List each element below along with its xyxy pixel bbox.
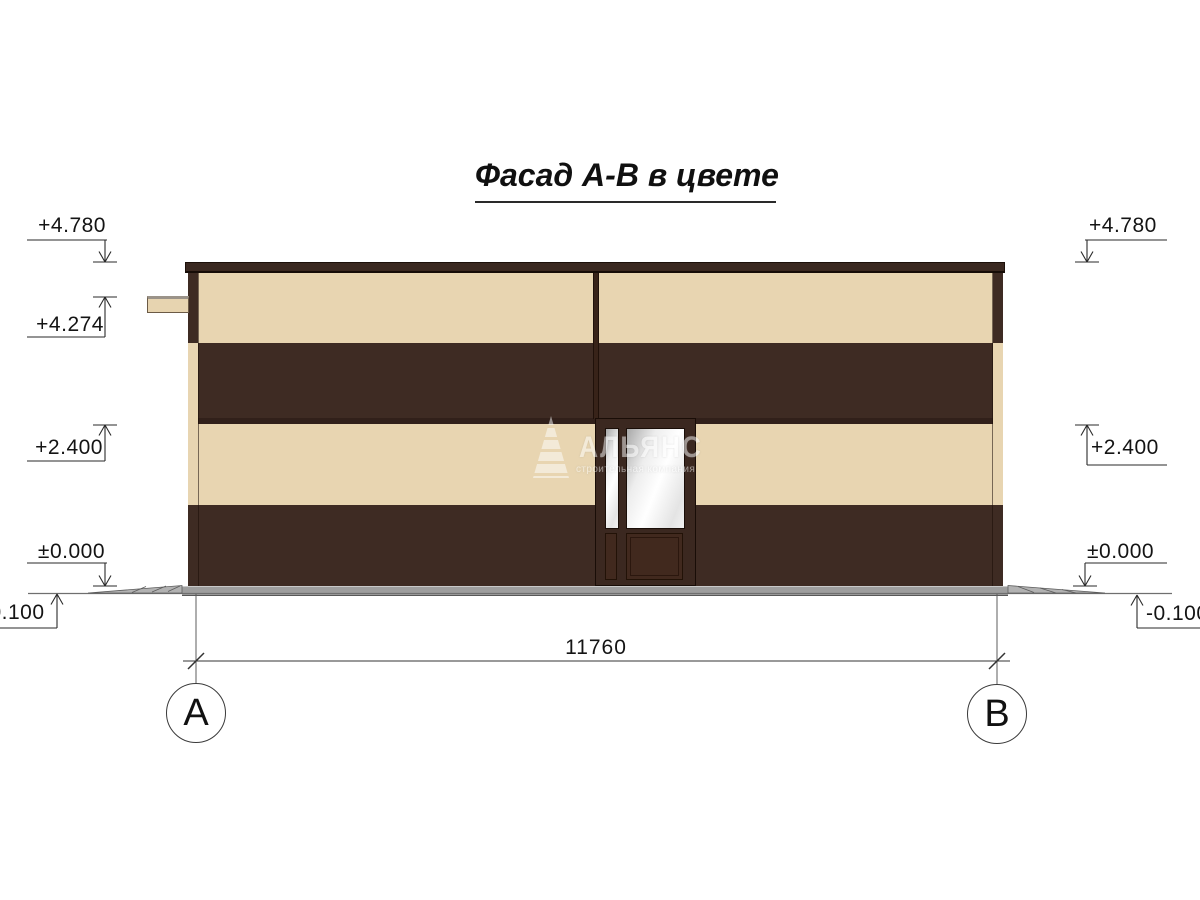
mark-right-parapet <box>1075 240 1167 262</box>
mark-left-parapet <box>27 240 117 262</box>
watermark-tagline: строительная компания <box>576 464 695 475</box>
watermark-brand: АЛЬЯНС <box>579 431 703 465</box>
axis-bubble-b: В <box>967 684 1027 744</box>
facade-drawing: АЛЬЯНС строительная компания <box>0 0 1200 900</box>
level-label-right-ground: -0.100 <box>1146 603 1200 624</box>
axis-letter-b: В <box>984 693 1009 736</box>
level-label-left-zero: ±0.000 <box>21 541 105 562</box>
corner-right-cream-seg <box>993 343 1003 505</box>
ground-verge-left <box>88 586 182 594</box>
level-label-left-ground: -0.100 <box>0 602 58 623</box>
mark-right-zero <box>1073 563 1167 586</box>
canopy-beam <box>147 296 189 313</box>
panel-joint <box>593 273 599 419</box>
door-leaf-panel <box>626 533 683 580</box>
level-label-right-parapet: +4.780 <box>1089 215 1173 236</box>
corner-right-dark-seg <box>993 273 1003 343</box>
axis-bubble-a: А <box>166 683 226 743</box>
level-label-left-storey: +2.400 <box>19 437 103 458</box>
door-panel-inset <box>630 537 679 576</box>
corner-strip-right <box>992 273 1003 586</box>
corner-right-dark-seg2 <box>993 505 1003 586</box>
axis-letter-a: А <box>183 692 208 735</box>
watermark-pyramid-logo <box>533 416 569 478</box>
corner-left-cream-seg <box>188 343 198 505</box>
plinth-base <box>182 586 1008 596</box>
corner-left-dark-seg <box>188 273 198 343</box>
corner-strip-left <box>188 273 199 586</box>
level-label-right-zero: ±0.000 <box>1087 541 1171 562</box>
mark-left-zero <box>27 563 117 586</box>
parapet-cap <box>185 262 1005 273</box>
drawing-title: Фасад А-В в цвете <box>475 157 776 203</box>
corner-left-dark-seg2 <box>188 505 198 586</box>
level-label-right-storey: +2.400 <box>1091 437 1175 458</box>
overall-dimension-label: 11760 <box>521 636 671 660</box>
door-sidelight-panel <box>605 533 617 580</box>
ground-verge-right <box>1008 586 1105 594</box>
level-label-left-parapet: +4.780 <box>22 215 106 236</box>
level-label-left-canopy: +4.274 <box>20 314 104 335</box>
